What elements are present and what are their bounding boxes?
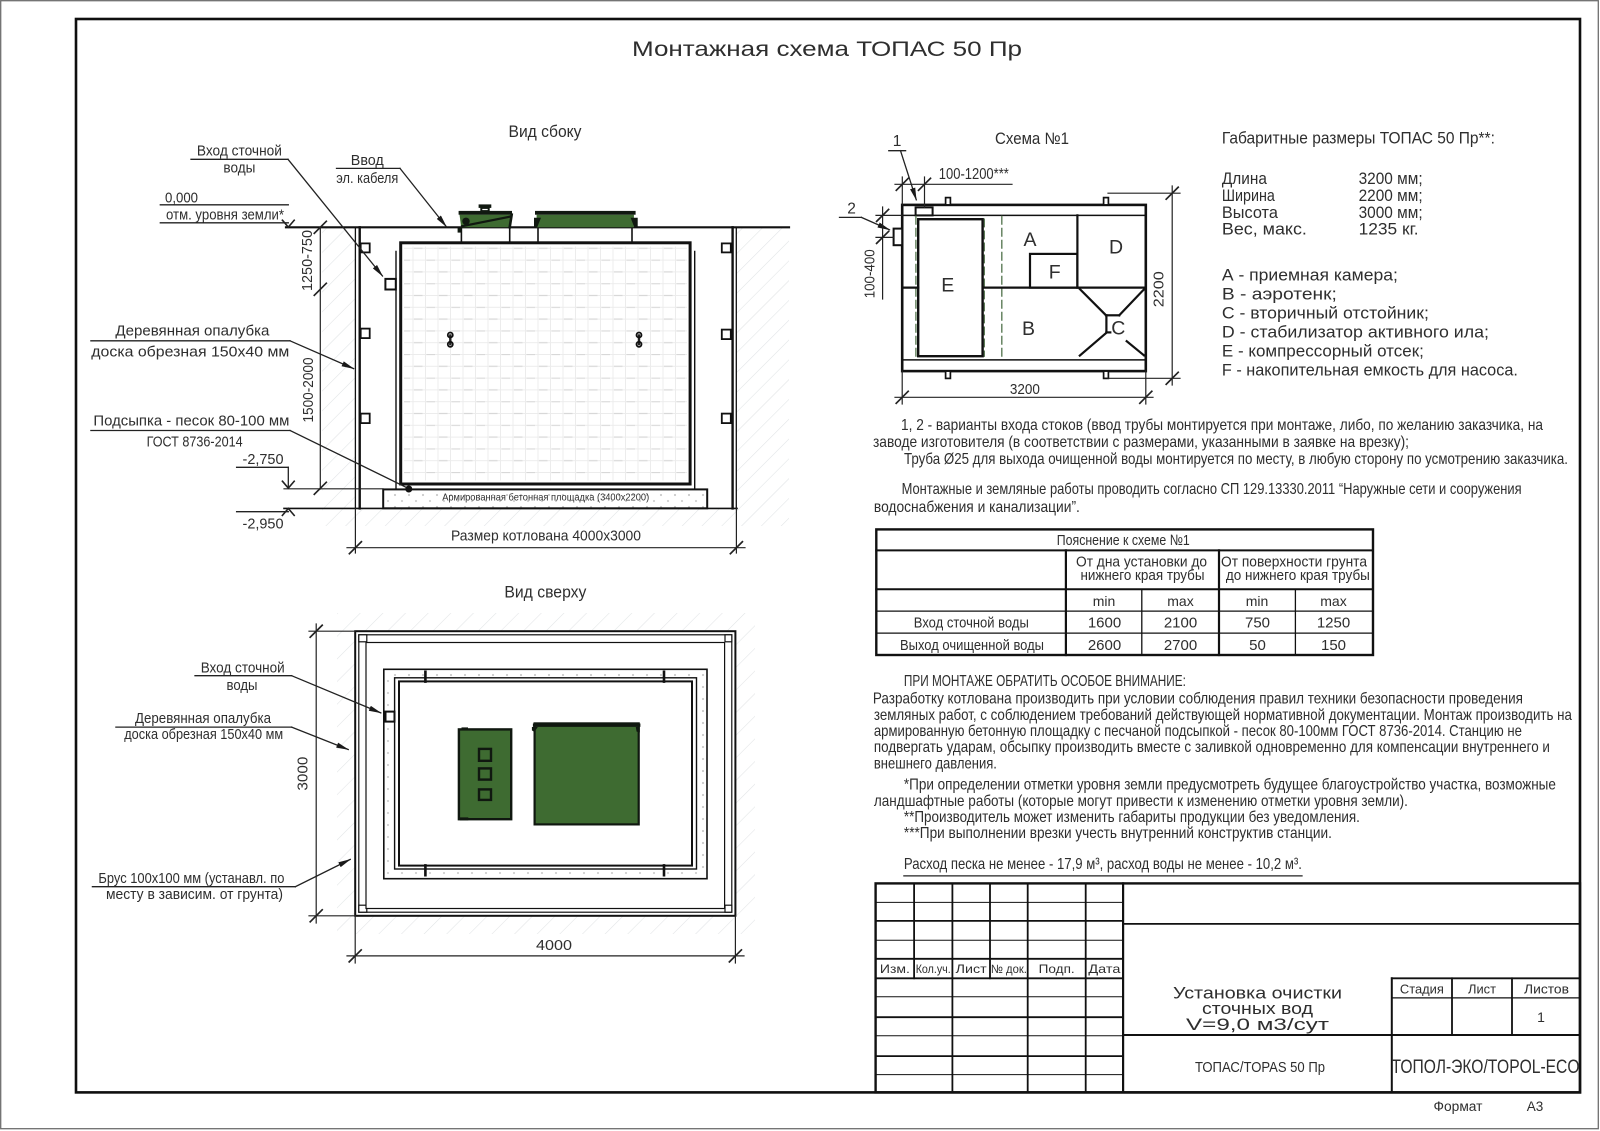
svg-text:А3: А3 (1527, 1099, 1544, 1114)
svg-text:ГОСТ 8736-2014: ГОСТ 8736-2014 (147, 433, 243, 450)
svg-text:Формат: Формат (1434, 1099, 1483, 1114)
svg-text:2600: 2600 (1088, 637, 1121, 654)
svg-text:заводе изготовителя (в соответ: заводе изготовителя (в соответствии с ра… (873, 434, 1409, 451)
svg-text:доска обрезная 150х40 мм: доска обрезная 150х40 мм (91, 344, 289, 361)
svg-text:*При определении отметки уровн: *При определении отметки уровня земли пр… (904, 776, 1556, 793)
svg-text:1600: 1600 (1088, 614, 1121, 631)
svg-text:Подп.: Подп. (1039, 962, 1075, 976)
svg-text:1: 1 (893, 133, 902, 150)
svg-text:max: max (1320, 593, 1346, 609)
svg-text:1: 1 (1537, 1009, 1545, 1025)
svg-text:D - стабилизатор активного ила: D - стабилизатор активного ила; (1222, 323, 1489, 342)
svg-text:Армированная бетонная площадка: Армированная бетонная площадка (3400х220… (442, 491, 649, 503)
svg-text:Изм.: Изм. (880, 962, 910, 976)
svg-text:0,000: 0,000 (165, 189, 198, 206)
svg-text:Выход очищенной воды: Выход очищенной воды (900, 637, 1044, 654)
svg-text:4000: 4000 (536, 938, 572, 954)
svg-text:подвергать ударам, обсыпку про: подвергать ударам, обсыпку производить в… (874, 739, 1550, 756)
svg-text:Кол.уч.: Кол.уч. (916, 962, 951, 976)
svg-text:доска обрезная 150х40 мм: доска обрезная 150х40 мм (124, 726, 283, 743)
svg-text:Разработку котлована производи: Разработку котлована производить при усл… (873, 691, 1523, 708)
svg-text:месту в зависим. от грунта): месту в зависим. от грунта) (106, 886, 283, 903)
svg-text:B: B (1022, 318, 1035, 340)
svg-text:1, 2 - варианты входа стоков: 1, 2 - варианты входа стоков (ввод трубы… (901, 417, 1543, 434)
svg-text:воды: воды (227, 677, 258, 694)
svg-text:1500-2000: 1500-2000 (300, 358, 317, 423)
svg-text:Пояснение к схеме №1: Пояснение к схеме №1 (1057, 532, 1190, 549)
svg-text:№ док.: № док. (991, 962, 1027, 976)
svg-text:В - аэротенк;: В - аэротенк; (1222, 285, 1337, 304)
svg-text:E: E (941, 274, 954, 296)
svg-text:100-1200***: 100-1200*** (939, 166, 1009, 183)
svg-text:F: F (1049, 261, 1061, 283)
svg-text:2700: 2700 (1164, 637, 1197, 654)
svg-text:150: 150 (1321, 637, 1346, 654)
svg-text:min: min (1093, 593, 1116, 609)
svg-text:эл. кабеля: эл. кабеля (336, 170, 398, 187)
svg-text:Расход песка не менее - 17,9 м: Расход песка не менее - 17,9 м³, расход … (904, 856, 1302, 873)
svg-text:земляных работ, с соблюдением: земляных работ, с соблюдением требований… (874, 707, 1572, 724)
svg-text:1250-750: 1250-750 (299, 230, 316, 291)
svg-text:внешнего давления.: внешнего давления. (874, 755, 997, 772)
svg-text:Лист: Лист (956, 962, 988, 976)
svg-text:ландшафтные работы (которые мо: ландшафтные работы (которые могут привес… (874, 793, 1408, 810)
svg-text:С - вторичный отстойник;: С - вторичный отстойник; (1222, 304, 1429, 323)
svg-text:Монтажные и земляные работы пр: Монтажные и земляные работы проводить со… (902, 481, 1522, 498)
svg-text:Вес, макс.: Вес, макс. (1222, 220, 1307, 239)
svg-text:2200: 2200 (1150, 271, 1167, 307)
svg-text:V=9,0 м3/сут: V=9,0 м3/сут (1186, 1016, 1330, 1034)
svg-text:50: 50 (1249, 637, 1266, 654)
svg-text:Вид сбоку: Вид сбоку (509, 123, 583, 141)
svg-text:Вход сточной воды: Вход сточной воды (914, 614, 1029, 631)
svg-text:до нижнего края трубы: до нижнего края трубы (1226, 568, 1370, 584)
svg-text:-2,950: -2,950 (243, 516, 284, 533)
svg-text:Подсыпка - песок 80-100 мм: Подсыпка - песок 80-100 мм (93, 412, 289, 429)
svg-text:ПРИ МОНТАЖЕ ОБРАТИТЬ ОСОБОЕ ВН: ПРИ МОНТАЖЕ ОБРАТИТЬ ОСОБОЕ ВНИМАНИЕ: (904, 673, 1186, 690)
svg-text:Монтажная схема ТОПАС 50 Пр: Монтажная схема ТОПАС 50 Пр (632, 37, 1022, 61)
svg-text:1250: 1250 (1317, 614, 1350, 631)
svg-text:А - приемная камера;: А - приемная камера; (1222, 266, 1398, 285)
svg-text:нижнего края трубы: нижнего края трубы (1081, 568, 1205, 584)
svg-text:Деревянная опалубка: Деревянная опалубка (115, 323, 270, 340)
svg-text:2: 2 (847, 201, 856, 218)
svg-text:Размер котлована 4000х3000: Размер котлована 4000х3000 (451, 528, 641, 544)
svg-text:Стадия: Стадия (1400, 982, 1444, 997)
svg-text:max: max (1167, 593, 1193, 609)
svg-text:100-400: 100-400 (862, 249, 879, 298)
svg-text:Деревянная опалубка: Деревянная опалубка (135, 710, 272, 727)
svg-text:ТОПОЛ-ЭКО/TOPOL-ECO: ТОПОЛ-ЭКО/TOPOL-ECO (1392, 1057, 1580, 1078)
svg-text:Ввод: Ввод (351, 152, 384, 169)
svg-text:2100: 2100 (1164, 614, 1197, 631)
svg-text:***При выполнении врезки учест: ***При выполнении врезки учесть внутренн… (904, 825, 1332, 842)
svg-text:Вид сверху: Вид сверху (504, 584, 587, 602)
svg-text:-2,750: -2,750 (243, 451, 284, 468)
svg-text:Вход сточной: Вход сточной (197, 143, 282, 160)
svg-text:Схема №1: Схема №1 (995, 130, 1069, 148)
svg-text:Дата: Дата (1088, 962, 1120, 976)
svg-text:750: 750 (1245, 614, 1270, 631)
svg-text:**Производитель может изменить: **Производитель может изменить габариты … (904, 809, 1360, 826)
svg-text:min: min (1246, 593, 1269, 609)
svg-text:Вход сточной: Вход сточной (201, 660, 285, 677)
svg-text:1235 кг.: 1235 кг. (1359, 220, 1419, 239)
svg-text:отм. уровня земли*: отм. уровня земли* (166, 207, 284, 224)
svg-text:Брус 100х100 мм (устанавл. по: Брус 100х100 мм (устанавл. по (98, 870, 284, 887)
svg-text:Листов: Листов (1524, 982, 1569, 997)
svg-text:Лист: Лист (1468, 982, 1496, 997)
svg-text:3200: 3200 (1010, 381, 1040, 398)
svg-text:C: C (1111, 318, 1125, 340)
svg-text:воды: воды (223, 160, 255, 177)
svg-text:3000: 3000 (296, 757, 312, 791)
svg-text:A: A (1023, 229, 1036, 251)
svg-text:ТОПАС/TOPAS 50 Пр: ТОПАС/TOPAS 50 Пр (1195, 1060, 1325, 1076)
svg-text:Труба Ø25 для выхода очищенной: Труба Ø25 для выхода очищенной воды монт… (904, 451, 1568, 468)
svg-text:армированную бетонную площадку: армированную бетонную площадку с песчано… (874, 723, 1522, 740)
svg-text:водоснабжения и канализации”.: водоснабжения и канализации”. (874, 499, 1080, 516)
svg-text:Габаритные размеры ТОПАС 50 Пр: Габаритные размеры ТОПАС 50 Пр**: (1222, 128, 1495, 147)
svg-text:Е - компрессорный отсек;: Е - компрессорный отсек; (1222, 342, 1424, 361)
svg-text:F - накопительная емкость для: F - накопительная емкость для насоса. (1222, 361, 1518, 380)
svg-text:D: D (1109, 237, 1123, 259)
